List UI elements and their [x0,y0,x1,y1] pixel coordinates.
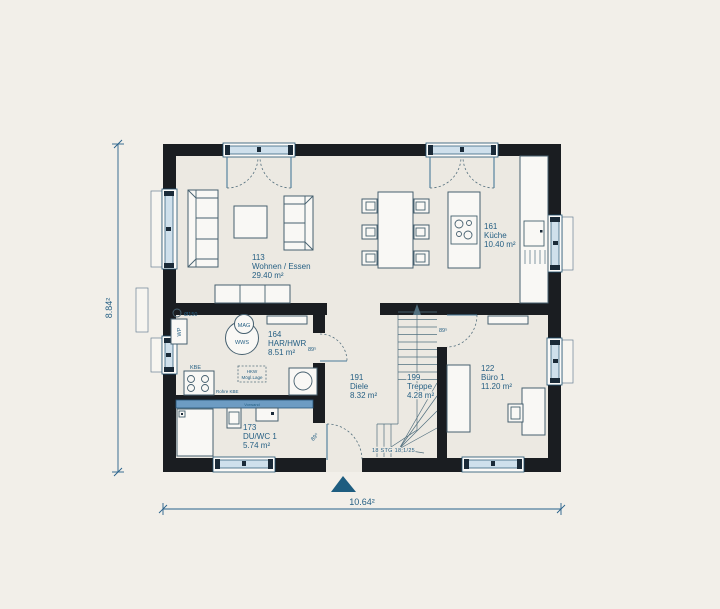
kitchen-counter [520,156,548,303]
desk-chair [508,404,523,422]
svg-text:Wohnen / Essen: Wohnen / Essen [252,262,311,271]
wall-mid-left [176,303,327,315]
floor-plan-canvas: 8.84² 10.64² [0,0,720,609]
door-buero-width: 89⁵ [439,327,447,334]
svg-text:122: 122 [481,364,495,373]
svg-text:Büro 1: Büro 1 [481,373,505,382]
door-har-width: 89⁵ [308,346,316,353]
wall-har-diele-upper [313,315,325,333]
kbe-label: KBE [190,365,201,371]
svg-text:29.40 m²: 29.40 m² [252,271,284,280]
rohre-kbe-label: Rohre KBE [216,389,239,394]
washbasin [227,408,241,428]
svg-text:Diele: Diele [350,382,369,391]
installation-wall: Vorwand [176,400,313,408]
entrance-arrow [331,476,356,492]
svg-text:173: 173 [243,423,257,432]
svg-text:191: 191 [350,373,364,382]
buero-shelf [488,316,528,324]
svg-text:4.28 m²: 4.28 m² [407,391,434,400]
wall-stair-buero [437,347,447,458]
har-shelf [267,316,307,324]
window-bottom-buero [462,457,524,472]
hkw-label-1: HKW [247,369,258,374]
entry-door-opening [326,458,362,472]
hkw-label-2: Mögl.Lage [241,375,263,380]
dining-chairs-right [414,199,429,265]
dimension-width-label: 10.64² [349,497,375,507]
heat-pump: WP [171,319,187,344]
svg-text:10.40 m²: 10.40 m² [484,240,516,249]
kitchen-island [448,192,480,268]
window-bottom-duwc [213,457,275,472]
sofa-small [284,196,313,250]
svg-text:164: 164 [268,330,282,339]
svg-text:HAR/HWR: HAR/HWR [268,339,306,348]
floor-plan-drawing: 8.84² 10.64² [0,0,720,609]
buero-couch [447,365,470,432]
dining-table [378,192,413,268]
dimension-left: 8.84² [104,140,124,476]
desk [522,388,545,435]
svg-text:8.51 m²: 8.51 m² [268,348,295,357]
svg-text:199: 199 [407,373,421,382]
svg-text:Treppe: Treppe [407,382,433,391]
washing-machine [289,368,317,395]
coffee-table [234,206,267,238]
wall-mid-right [380,303,548,315]
svg-text:11.20 m²: 11.20 m² [481,382,512,391]
svg-text:161: 161 [484,222,498,231]
window-left-living [151,189,177,269]
window-right-buero [547,338,573,385]
svg-text:Küche: Küche [484,231,507,240]
window-right-kitchen [547,215,573,272]
svg-text:DU/WC 1: DU/WC 1 [243,432,277,441]
svg-text:8.32 m²: 8.32 m² [350,391,377,400]
duct-label: Ø150 [184,312,197,318]
mag-label: MAG [238,323,251,329]
heat-pump-label: WP [177,327,183,336]
sofa-large [188,190,218,267]
installation-wall-label: Vorwand [244,402,260,407]
stair-count-label: 18 STG 18,1/25 [372,448,415,454]
shower [177,409,213,456]
svg-text:113: 113 [252,253,265,262]
dining-chairs-left [362,199,377,265]
wws-label: WWS [235,340,249,346]
sideboard [215,285,290,303]
dimension-bottom: 10.64² [159,497,565,515]
toilet [256,408,278,421]
dimension-height-label: 8.84² [104,298,114,319]
svg-text:5.74 m²: 5.74 m² [243,441,270,450]
chimney-block [136,288,148,332]
